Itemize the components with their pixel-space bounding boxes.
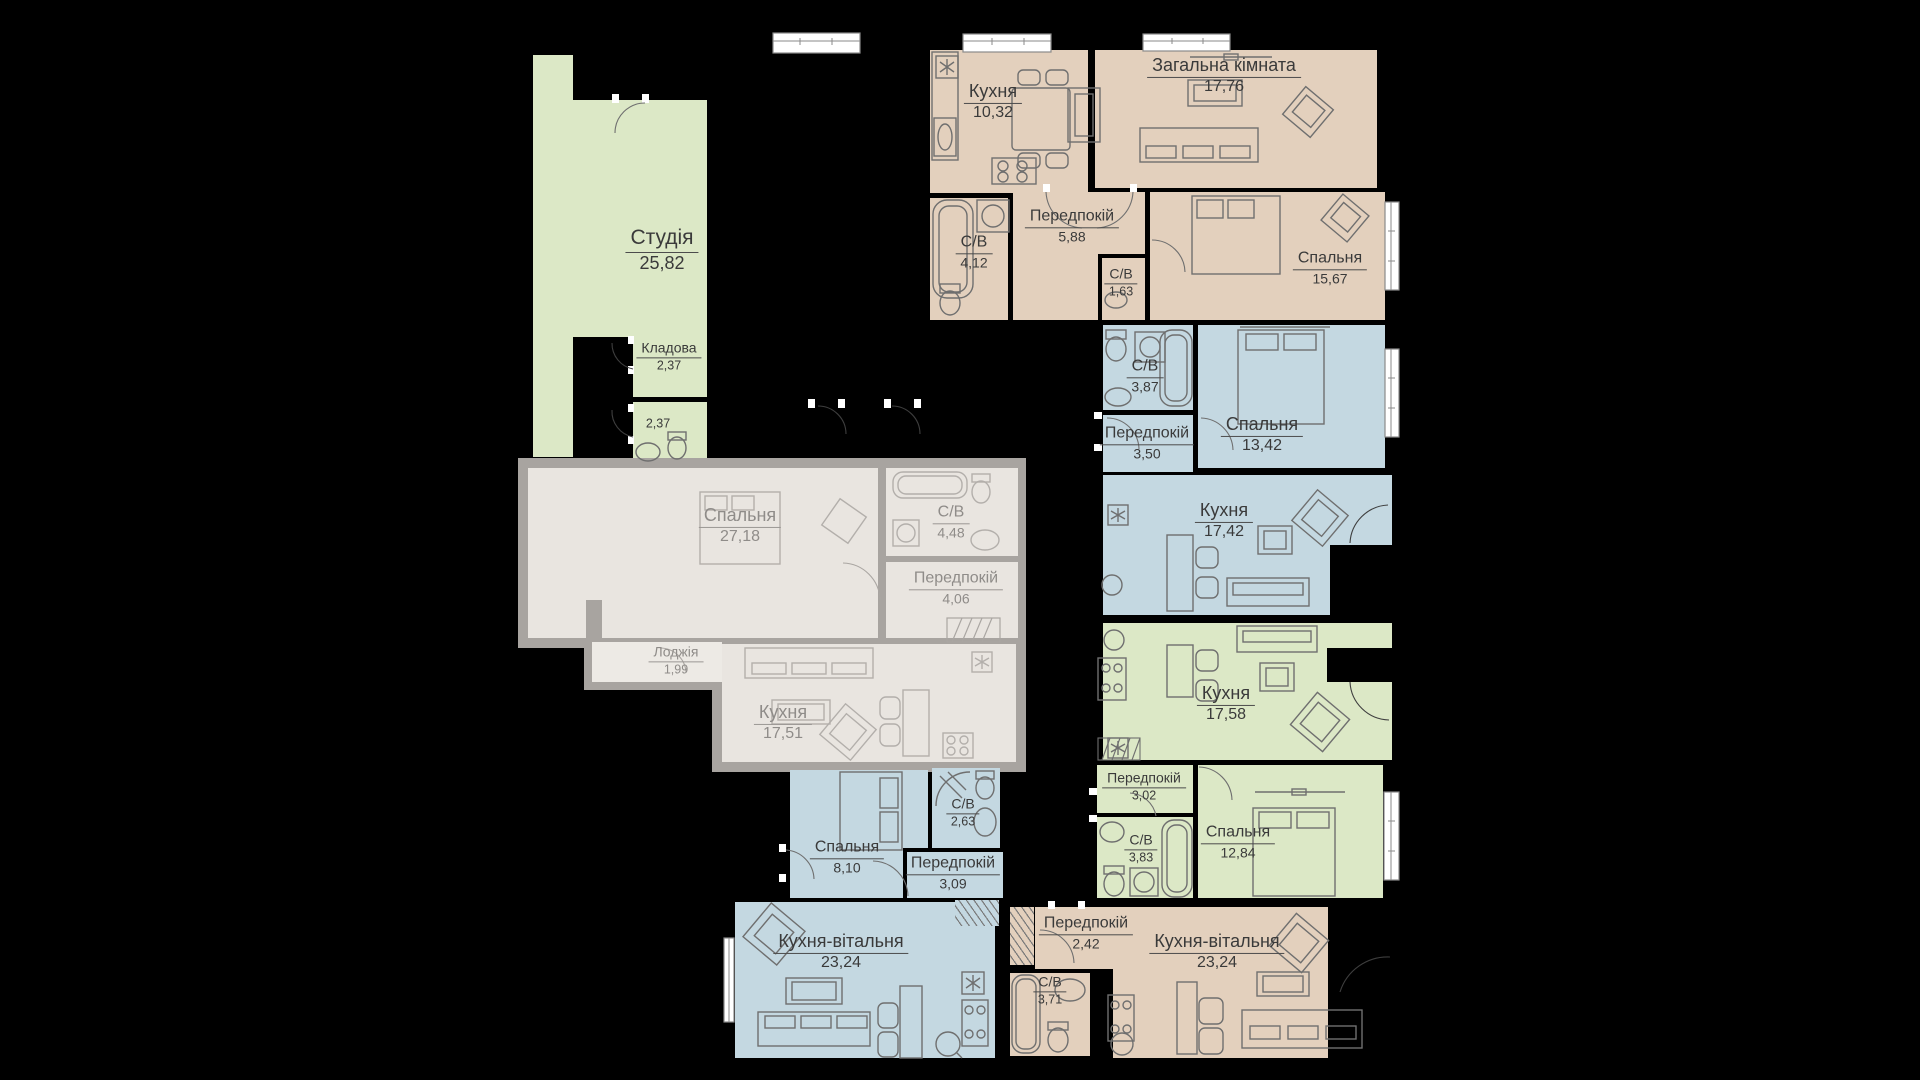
stove-icon	[943, 733, 973, 758]
kettle-icon	[1104, 630, 1124, 650]
door-arc-corridor-1	[818, 406, 846, 434]
room-label-sv-412: С/В4,12	[956, 233, 993, 270]
room-label-peredpokiy-242: Передпокій2,42	[1039, 914, 1133, 951]
sofa	[758, 1012, 870, 1046]
chair	[1196, 547, 1218, 568]
door-arc-b-bedroom	[1152, 240, 1185, 272]
room-label-spalnya-1567: Спальня15,67	[1293, 249, 1367, 286]
closet-e-hatch	[947, 618, 1000, 642]
door-arc-g-balcony	[1340, 957, 1390, 992]
kettle-icon	[1102, 575, 1122, 595]
chair	[880, 697, 900, 719]
door-arc-d-bedroom	[1199, 767, 1232, 800]
door-arc-kladova	[612, 343, 633, 369]
room-label-peredpokiy-309: Передпокій3,09	[906, 854, 1000, 891]
chair	[1199, 998, 1223, 1024]
room-label-kv-left: Кухня-вітальня23,24	[773, 931, 908, 973]
window-spalnya-1567	[1385, 202, 1399, 290]
pillow	[1197, 200, 1223, 218]
room-label-peredpokiy-406: Передпокій4,06	[909, 569, 1003, 606]
chair	[880, 724, 900, 746]
chair	[878, 1003, 898, 1028]
floor-plan: Студія25,82 Кладова2,37 2,37 Кухня10,32 …	[0, 0, 1920, 1080]
furniture-studio	[636, 432, 686, 461]
chair	[1196, 577, 1218, 598]
tv-stand	[1068, 88, 1100, 142]
room-label-kuhnya-1032: Кухня10,32	[964, 81, 1022, 123]
sink-basin	[938, 124, 952, 150]
door-arc-e-bedroom	[843, 563, 880, 600]
stove-icon	[1098, 658, 1126, 700]
pillow	[1284, 334, 1316, 350]
chair	[1199, 1028, 1223, 1054]
room-label-kladova: Кладова2,37	[636, 339, 701, 372]
room-label-sv-263: С/В2,63	[946, 795, 979, 828]
pillow	[1297, 812, 1329, 828]
window-spalnya-1342	[1385, 349, 1399, 437]
desk-chair	[822, 499, 867, 544]
armchair	[820, 704, 876, 760]
pillow	[1228, 200, 1254, 218]
fridge-asterisk-icon	[975, 655, 989, 669]
room-label-sv-371: С/В3,71	[1033, 973, 1066, 1006]
room-label-sv-448: С/В4,48	[933, 503, 970, 540]
kitchen-counter	[1167, 645, 1193, 697]
sink-icon	[971, 530, 999, 550]
window-kitchen-a	[963, 34, 1051, 52]
toilet-icon	[668, 432, 686, 440]
sink-icon	[636, 443, 660, 461]
chair	[1046, 153, 1068, 168]
bed	[1192, 196, 1280, 274]
room-label-peredpokiy-350: Передпокій3,50	[1100, 424, 1194, 461]
room-label-lodzhiya: Лоджія1,99	[649, 643, 704, 676]
chair	[1046, 70, 1068, 85]
door-arc-sv237	[612, 410, 633, 437]
toilet-icon	[1048, 1022, 1068, 1030]
sofa	[1237, 626, 1317, 652]
room-label-sv-237: 2,37	[646, 417, 670, 432]
sofa	[1242, 1010, 1362, 1048]
window-zagalna	[1143, 34, 1230, 51]
window-kv-left	[724, 938, 734, 1022]
window-spalnya-1284	[1384, 792, 1399, 880]
tv-stand	[1258, 526, 1292, 554]
kitchen-counter	[1177, 982, 1197, 1054]
room-label-sv-163: С/В1,63	[1104, 265, 1137, 298]
fridge-asterisk-icon	[1111, 508, 1125, 522]
room-label-kuhnya-1742: Кухня17,42	[1195, 500, 1253, 542]
room-label-kv-right: Кухня-вітальня23,24	[1149, 931, 1284, 973]
armchair	[1292, 490, 1348, 546]
room-label-zagalna: Загальна кімната17,76	[1147, 55, 1301, 97]
chair	[878, 1032, 898, 1057]
tv-stand	[1260, 663, 1294, 691]
fridge-asterisk-icon	[966, 975, 980, 991]
door-arc-d-balcony	[1350, 682, 1389, 720]
room-label-kuhnya-1751: Кухня17,51	[754, 702, 812, 744]
toilet-icon	[976, 771, 994, 779]
window-top-corridor	[773, 33, 860, 53]
door-arc-c-balcony	[1350, 505, 1388, 543]
room-label-peredpokiy-302: Передпокій3,02	[1102, 769, 1186, 802]
kitchen-counter	[1167, 535, 1193, 611]
fridge-asterisk-icon	[940, 59, 954, 75]
room-label-sv-387: С/В3,87	[1127, 357, 1164, 394]
kettle-icon	[1111, 1033, 1133, 1055]
pillow	[880, 778, 898, 808]
sink-icon	[1100, 822, 1124, 842]
door-arc-corridor-2	[892, 406, 920, 434]
room-label-spalnya-2718: Спальня27,18	[699, 505, 781, 547]
sofa	[1140, 128, 1258, 162]
room-label-spalnya-1284: Спальня12,84	[1201, 823, 1275, 860]
room-label-spalnya-810: Спальня8,10	[810, 838, 884, 875]
room-label-studio: Студія25,82	[625, 226, 698, 274]
kitchen-counter	[900, 986, 922, 1058]
armchair	[1321, 194, 1369, 242]
room-label-spalnya-1342: Спальня13,42	[1221, 414, 1303, 456]
chair	[1196, 650, 1218, 671]
bed	[1238, 330, 1324, 424]
pillow	[1246, 334, 1278, 350]
door-arc-studio	[615, 103, 645, 133]
room-label-sv-383: С/В3,83	[1124, 831, 1157, 864]
sofa	[1227, 578, 1309, 606]
kitchen-counter	[903, 690, 929, 756]
room-label-peredpokiy-588: Передпокій5,88	[1025, 207, 1119, 244]
room-label-kuhnya-1758: Кухня17,58	[1197, 683, 1255, 725]
toilet-icon	[1104, 866, 1124, 874]
armchair	[1290, 692, 1349, 751]
